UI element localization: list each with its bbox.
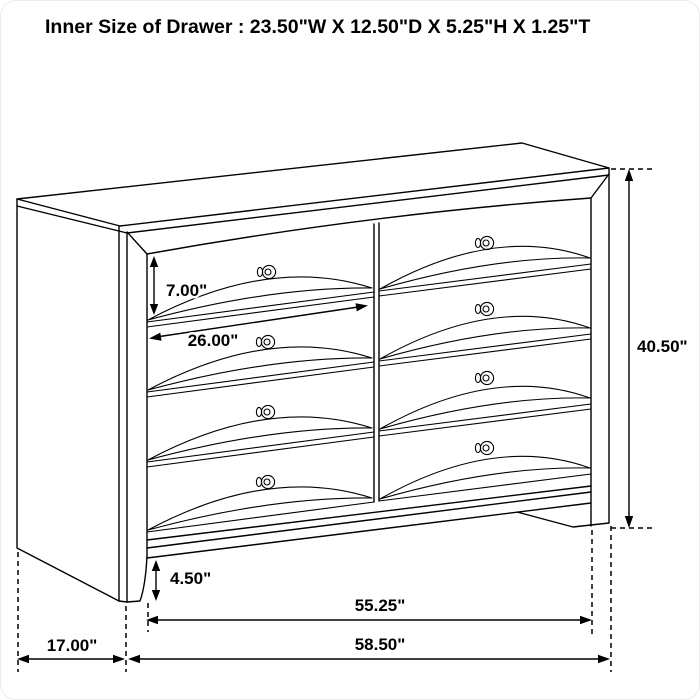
crown-bevel-left (127, 232, 147, 254)
dim-side-depth-arrow (17, 655, 125, 663)
top-slab-left-edge (17, 206, 127, 233)
left-column-drawer-mouldings (148, 277, 372, 530)
bottom-rail-line-2 (147, 492, 591, 548)
dimension-diagram: Inner Size of Drawer : 23.50"W X 12.50"D… (0, 0, 700, 700)
dim-overall-height-arrow (625, 169, 633, 528)
top-slab-front-edge (127, 175, 609, 233)
left-foot (127, 556, 147, 602)
case-bottom-edge (147, 503, 591, 558)
dimension-arrows (17, 169, 633, 663)
knob-left-1 (257, 265, 275, 278)
center-divider (374, 223, 379, 502)
bottom-rail-line-1 (147, 486, 591, 540)
dim-side-depth-label: 17.00" (47, 636, 98, 655)
dim-base-clearance-arrow (152, 560, 160, 601)
knob-right-2 (475, 302, 493, 315)
dim-overall-width-label: 58.50" (355, 635, 406, 654)
knob-left-2 (256, 335, 274, 348)
dim-overall-height-label: 40.50" (637, 337, 688, 356)
right-foot (517, 512, 609, 527)
knob-right-3 (475, 371, 493, 384)
right-column-drawer-mouldings (380, 246, 590, 499)
dim-drawer-front-height-label: 7.00" (166, 281, 207, 300)
extension-lines (18, 169, 656, 672)
left-side-panel (17, 199, 119, 601)
knob-right-4 (475, 441, 493, 454)
right-column-drawer-boundaries (379, 264, 591, 501)
dresser-line-drawing (17, 143, 609, 602)
dim-front-width-arrow (146, 616, 592, 624)
dim-drawer-front-height-arrow (150, 256, 158, 315)
crown-bottom-edge (147, 198, 591, 254)
dim-drawer-front-width-label: 26.00" (188, 331, 239, 350)
knob-left-4 (256, 475, 274, 488)
knob-left-3 (256, 405, 274, 418)
dim-front-width-label: 55.25" (355, 596, 406, 615)
knob-right-1 (475, 236, 493, 249)
dim-base-clearance-label: 4.50" (170, 569, 211, 588)
dresser-top-face (17, 143, 609, 226)
diagram-title: Inner Size of Drawer : 23.50"W X 12.50"D… (45, 16, 590, 38)
left-corner-post-outer (119, 226, 127, 602)
right-column-drawer-gaps (379, 269, 591, 436)
dim-overall-width-arrow (128, 655, 610, 663)
left-column-drawer-boundaries (147, 292, 374, 532)
crown-bevel-right (591, 174, 609, 198)
